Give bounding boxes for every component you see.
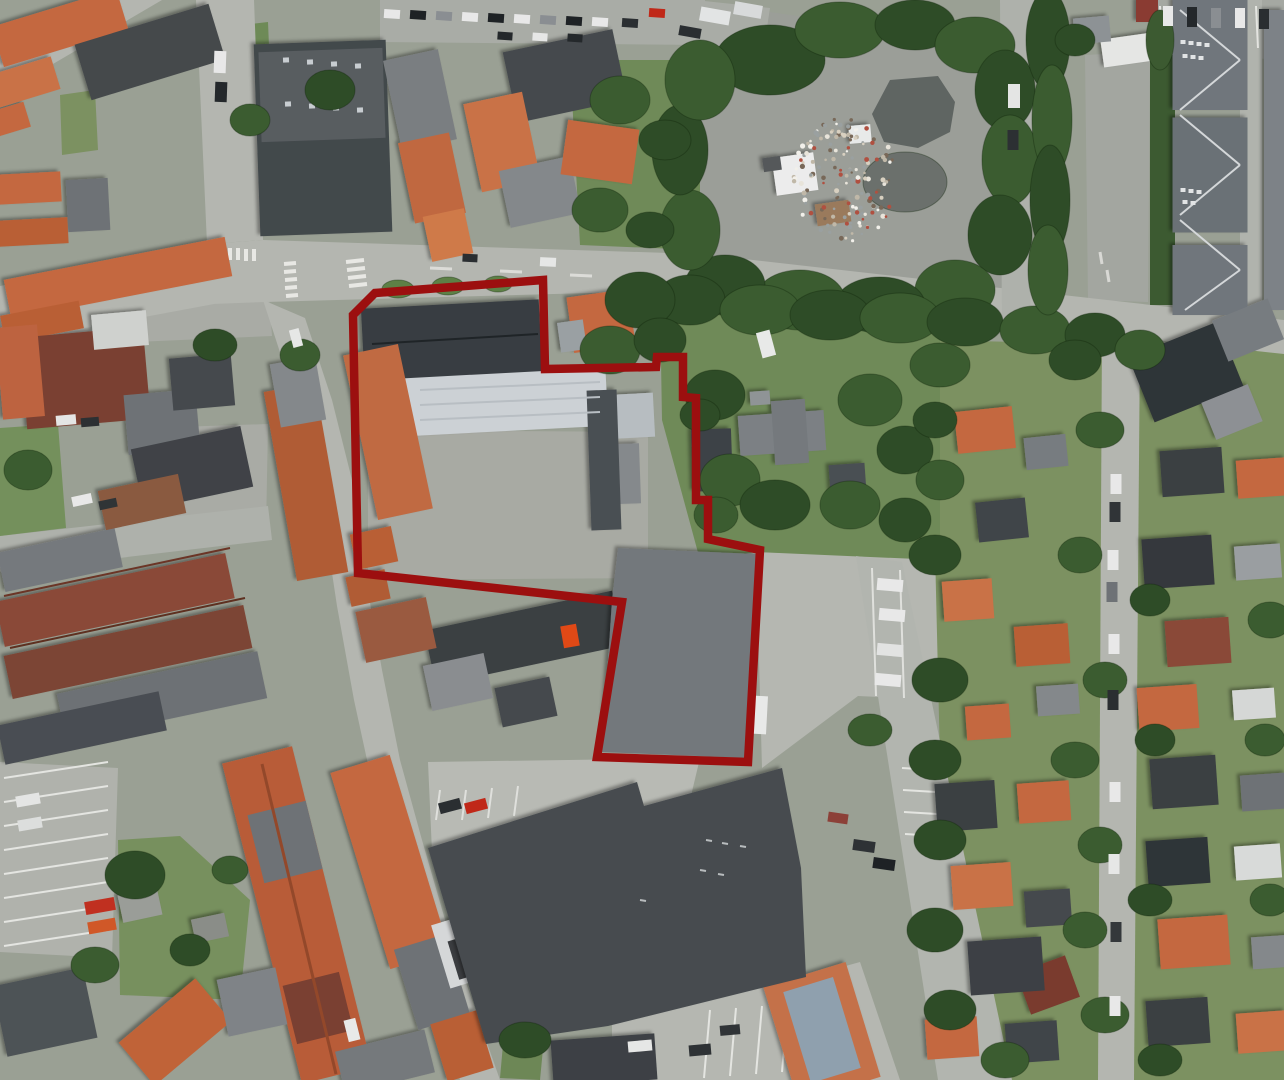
- crowd-person-dot: [875, 191, 878, 194]
- tree: [1076, 412, 1124, 448]
- car: [566, 16, 583, 26]
- crowd-person-dot: [834, 149, 838, 153]
- car: [877, 578, 904, 592]
- tree: [909, 535, 961, 575]
- house: [954, 406, 1016, 454]
- car: [56, 414, 77, 426]
- house: [942, 578, 995, 621]
- crowd-person-dot: [846, 124, 850, 128]
- crosswalk-stripe: [285, 279, 297, 280]
- crowd-person-dot: [854, 136, 858, 140]
- skylight-dot: [355, 63, 361, 68]
- lane-dash: [430, 268, 452, 269]
- tree: [912, 658, 968, 702]
- house: [951, 862, 1014, 910]
- tree: [720, 285, 800, 335]
- dormer-dot: [1183, 200, 1188, 204]
- crowd-person-dot: [848, 225, 853, 230]
- crowd-person-dot: [822, 205, 827, 210]
- crowd-person-dot: [850, 135, 854, 139]
- tree: [1128, 884, 1172, 916]
- car: [567, 33, 583, 42]
- house: [1232, 688, 1276, 721]
- tree: [305, 70, 355, 110]
- crowd-person-dot: [792, 179, 796, 183]
- crowd-person-dot: [854, 206, 858, 210]
- lane-dash: [500, 271, 522, 272]
- tree: [879, 498, 931, 542]
- tree: [981, 1042, 1029, 1078]
- tree: [639, 120, 691, 160]
- tree: [1245, 724, 1284, 756]
- car: [1110, 782, 1121, 802]
- tree: [105, 851, 165, 899]
- crowd-person-dot: [851, 239, 854, 242]
- tree: [170, 934, 210, 966]
- plaza-west-of-hedge: [1085, 52, 1150, 302]
- crowd-person-dot: [846, 150, 848, 152]
- dormer-dot: [1197, 190, 1202, 194]
- crowd-person-dot: [879, 205, 883, 209]
- crowd-person-dot: [833, 166, 837, 170]
- building-orange: [0, 171, 62, 204]
- crowd-person-dot: [855, 210, 859, 214]
- car: [81, 417, 100, 428]
- dormer-dot: [1191, 201, 1196, 205]
- crowd-person-dot: [880, 196, 884, 200]
- house: [1157, 915, 1230, 970]
- dormer-dot: [1183, 54, 1188, 58]
- car: [1008, 130, 1019, 150]
- car: [1235, 8, 1245, 28]
- building-gray: [66, 178, 111, 232]
- crowd-person-dot: [839, 236, 844, 241]
- tree: [4, 450, 52, 490]
- crowd-person-dot: [864, 157, 869, 162]
- tree: [790, 290, 870, 340]
- crowd-person-dot: [862, 143, 865, 146]
- crowd-person-dot: [809, 173, 812, 176]
- crowd-person-dot: [804, 202, 807, 205]
- tree: [1115, 330, 1165, 370]
- tree: [838, 374, 902, 426]
- crowd-person-dot: [825, 134, 830, 139]
- crowd-person-dot: [886, 145, 891, 150]
- crowd-person-dot: [837, 183, 840, 186]
- tree: [1081, 997, 1129, 1033]
- roof-vent: [740, 846, 746, 847]
- dormer-dot: [1191, 55, 1196, 59]
- tree: [1055, 24, 1095, 56]
- skylight-dot: [307, 59, 313, 64]
- crosswalk-stripe: [348, 276, 366, 278]
- car: [1110, 502, 1121, 522]
- car: [540, 257, 556, 267]
- tree: [848, 714, 892, 746]
- crowd-person-dot: [847, 201, 851, 205]
- house: [1017, 780, 1072, 824]
- crowd-person-dot: [851, 232, 854, 235]
- tree: [916, 460, 964, 500]
- crowd-person-dot: [829, 142, 833, 146]
- tree: [1028, 225, 1068, 315]
- crowd-person-dot: [845, 222, 849, 226]
- car: [1109, 854, 1120, 874]
- house: [1236, 1010, 1284, 1053]
- dormer-dot: [1197, 42, 1202, 46]
- tree: [193, 329, 237, 361]
- crowd-person-dot: [795, 167, 798, 170]
- crowd-person-dot: [802, 191, 807, 196]
- crowd-person-dot: [817, 165, 821, 169]
- lane-text-mark: [1100, 252, 1102, 264]
- crowd-person-dot: [861, 233, 864, 236]
- crowd-person-dot: [799, 181, 804, 186]
- car: [462, 254, 477, 263]
- roof-vent: [700, 870, 706, 871]
- crowd-person-dot: [844, 237, 847, 240]
- crowd-person-dot: [857, 221, 861, 225]
- block-white-court: [91, 310, 149, 350]
- parcel-dark-vertical: [587, 390, 622, 531]
- crowd-person-dot: [838, 123, 843, 128]
- tree: [927, 298, 1003, 346]
- house: [1036, 684, 1080, 717]
- skylight-dot: [285, 101, 291, 106]
- crowd-person-dot: [887, 205, 891, 209]
- car-red: [649, 8, 666, 18]
- car: [1187, 7, 1197, 27]
- crowd-person-dot: [876, 226, 880, 230]
- crowd-person-dot: [799, 158, 803, 162]
- car: [1108, 550, 1119, 570]
- aerial-photo-map[interactable]: [0, 0, 1284, 1080]
- car: [462, 12, 479, 22]
- crowd-person-dot: [868, 196, 872, 200]
- crowd-person-dot: [849, 168, 852, 171]
- tree: [982, 115, 1038, 205]
- house: [1164, 617, 1231, 667]
- crosswalk-stripe: [347, 268, 365, 270]
- manor-shed: [750, 390, 771, 405]
- crowd-person-dot: [796, 151, 801, 156]
- crowd-person-dot: [833, 118, 836, 121]
- building-institutional: [1173, 118, 1248, 233]
- crowd-person-dot: [862, 165, 866, 169]
- crowd-person-dot: [822, 182, 825, 185]
- house: [1145, 837, 1210, 887]
- building-orange: [0, 217, 69, 247]
- crowd-person-dot: [828, 148, 832, 152]
- crowd-person-dot: [806, 142, 809, 145]
- house: [1137, 684, 1200, 732]
- crowd-person-dot: [849, 118, 853, 122]
- crowd-person-dot: [804, 151, 809, 156]
- crosswalk-stripe: [284, 271, 296, 272]
- crowd-person-dot: [801, 213, 805, 217]
- crowd-person-dot: [812, 146, 816, 150]
- crowd-person-dot: [823, 124, 827, 128]
- tree: [820, 481, 880, 529]
- dormer-dot: [1181, 188, 1186, 192]
- crowd-person-dot: [842, 133, 847, 138]
- car: [628, 1039, 653, 1052]
- car: [214, 51, 227, 73]
- house: [1141, 535, 1214, 590]
- house: [1251, 935, 1284, 970]
- car: [1107, 582, 1118, 602]
- crowd-person-dot: [832, 222, 836, 226]
- car: [1163, 6, 1173, 26]
- car: [875, 673, 902, 687]
- car: [215, 82, 228, 102]
- dormer-dot: [1181, 40, 1186, 44]
- crowd-person-dot: [870, 141, 874, 145]
- crowd-person-dot: [839, 173, 843, 177]
- house: [965, 704, 1011, 741]
- tree: [795, 2, 885, 58]
- crowd-person-dot: [821, 176, 826, 181]
- crowd-person-dot: [864, 126, 869, 131]
- car: [1111, 922, 1122, 942]
- dormer-dot: [1189, 41, 1194, 45]
- tree: [212, 856, 248, 884]
- house: [1234, 843, 1282, 880]
- crowd-person-dot: [883, 158, 887, 162]
- crowd-person-dot: [882, 182, 886, 186]
- house: [1014, 623, 1071, 667]
- tree: [907, 908, 963, 952]
- car: [1110, 996, 1121, 1016]
- tree: [230, 104, 270, 136]
- crowd-person-dot: [834, 188, 839, 193]
- crowd-person-dot: [837, 130, 841, 134]
- crowd-person-dot: [851, 171, 853, 173]
- crowd-person-dot: [862, 218, 865, 221]
- crowd-person-dot: [877, 209, 880, 212]
- crowd-person-dot: [885, 215, 888, 218]
- crowd-person-dot: [816, 133, 820, 137]
- crowd-person-dot: [866, 226, 869, 229]
- building-institutional: [1173, 245, 1248, 315]
- dormer-dot: [1199, 56, 1204, 60]
- tree: [913, 402, 957, 438]
- house: [1145, 997, 1210, 1047]
- crowd-person-dot: [864, 213, 867, 216]
- aerial-map-canvas[interactable]: [0, 0, 1284, 1080]
- crowd-person-dot: [843, 215, 847, 219]
- crowd-person-dot: [851, 156, 854, 159]
- dormer-dot: [1189, 189, 1194, 193]
- car: [622, 18, 639, 28]
- crowd-person-dot: [875, 158, 879, 162]
- tree: [910, 343, 970, 387]
- building-gray-bl: [217, 967, 288, 1036]
- crowd-person-dot: [849, 138, 852, 141]
- crowd-person-dot: [855, 168, 858, 171]
- skylight-dot: [357, 107, 363, 112]
- roof-vent: [706, 840, 712, 841]
- crowd-person-dot: [855, 195, 860, 200]
- building-orange: [561, 120, 640, 184]
- crowd-person-dot: [826, 224, 829, 227]
- crowd-person-dot: [851, 178, 856, 183]
- hedge-topright: [1150, 55, 1175, 305]
- house: [1234, 543, 1282, 580]
- crowd-person-dot: [833, 208, 836, 211]
- car: [1108, 690, 1119, 710]
- crowd-person-dot: [860, 192, 863, 195]
- crowd-person-dot: [828, 231, 831, 234]
- van: [1008, 84, 1020, 108]
- car: [514, 14, 531, 24]
- tree: [909, 740, 961, 780]
- car: [1111, 474, 1122, 494]
- tree: [590, 76, 650, 124]
- crowd-person-dot: [856, 175, 861, 180]
- tree: [572, 188, 628, 232]
- parcel-warehouse-east: [602, 548, 756, 758]
- crowd-person-dot: [835, 123, 838, 126]
- car: [436, 11, 453, 21]
- house: [1240, 772, 1284, 811]
- house: [1023, 434, 1068, 470]
- crosswalk-stripe: [346, 260, 364, 262]
- tree: [626, 212, 674, 248]
- car: [410, 10, 427, 20]
- crosswalk-stripe: [284, 263, 296, 264]
- manor-house-wing: [771, 399, 809, 465]
- house: [1149, 755, 1218, 809]
- crowd-person-dot: [859, 206, 862, 209]
- roof-vent: [640, 900, 646, 901]
- car: [384, 9, 401, 19]
- car: [879, 608, 906, 622]
- lane-text-mark: [1107, 270, 1109, 282]
- crowd-person-dot: [823, 217, 826, 220]
- crowd-person-dot: [870, 211, 874, 215]
- crowd-person-dot: [800, 143, 805, 148]
- crowd-person-dot: [811, 160, 815, 164]
- crowd-person-dot: [824, 159, 827, 162]
- crowd-person-dot: [845, 174, 849, 178]
- crowd-person-dot: [863, 176, 867, 180]
- crowd-person-dot: [848, 212, 852, 216]
- crosswalk-stripe: [349, 284, 367, 286]
- crosswalk-stripe: [285, 287, 297, 288]
- crowd-person-dot: [845, 182, 848, 185]
- car: [497, 31, 513, 40]
- house: [1236, 457, 1284, 498]
- building-institutional-east: [1264, 10, 1284, 310]
- tree: [71, 947, 119, 983]
- crowd-person-dot: [854, 128, 857, 131]
- tree: [1049, 340, 1101, 380]
- tree: [1083, 662, 1127, 698]
- tree: [1138, 1044, 1182, 1076]
- crowd-person-dot: [834, 135, 838, 139]
- car: [1211, 8, 1221, 28]
- skylight-dot: [283, 57, 289, 62]
- crowd-person-dot: [851, 205, 855, 209]
- crowd-person-dot: [831, 157, 835, 161]
- tree: [968, 195, 1032, 275]
- skylight-dot: [331, 61, 337, 66]
- car: [689, 1044, 712, 1057]
- tree: [1051, 742, 1099, 778]
- crowd-person-dot: [802, 198, 807, 203]
- block-dark: [169, 353, 235, 410]
- crowd-person-dot: [871, 204, 875, 208]
- car: [532, 32, 548, 41]
- car: [877, 643, 904, 657]
- tree: [1250, 884, 1284, 916]
- crowd-person-dot: [809, 211, 814, 216]
- tree: [1063, 912, 1107, 948]
- tree: [1130, 584, 1170, 616]
- crowd-person-dot: [800, 164, 805, 169]
- house: [1159, 447, 1224, 497]
- tree: [1135, 724, 1175, 756]
- crowd-person-dot: [888, 179, 890, 181]
- lane-dash: [570, 275, 592, 276]
- car: [1109, 634, 1120, 654]
- tree: [499, 1022, 551, 1058]
- crowd-person-dot: [835, 196, 838, 199]
- crowd-person-dot: [839, 169, 842, 172]
- car: [540, 15, 557, 25]
- house: [975, 497, 1029, 542]
- crosswalk-stripe: [286, 295, 298, 296]
- car: [720, 1024, 741, 1036]
- crowd-person-dot: [847, 146, 850, 149]
- crowd-person-dot: [831, 215, 835, 219]
- crowd-person-dot: [842, 153, 845, 156]
- market-hut: [762, 156, 782, 172]
- car: [1259, 9, 1269, 29]
- roof-vent: [718, 874, 724, 875]
- tree: [740, 480, 810, 530]
- roof-vent: [722, 843, 728, 844]
- crowd-person-dot: [888, 160, 891, 163]
- tree: [1058, 537, 1102, 573]
- crowd-person-dot: [863, 172, 866, 175]
- tree: [914, 820, 966, 860]
- crowd-person-dot: [819, 228, 824, 233]
- crowd-person-dot: [830, 131, 833, 134]
- car: [592, 17, 609, 27]
- tree: [665, 40, 735, 120]
- tree: [924, 990, 976, 1030]
- house: [967, 936, 1045, 995]
- car: [488, 13, 505, 23]
- crowd-person-dot: [819, 137, 823, 141]
- crowd-person-dot: [809, 140, 812, 143]
- dormer-dot: [1205, 43, 1210, 47]
- crowd-person-dot: [849, 221, 852, 224]
